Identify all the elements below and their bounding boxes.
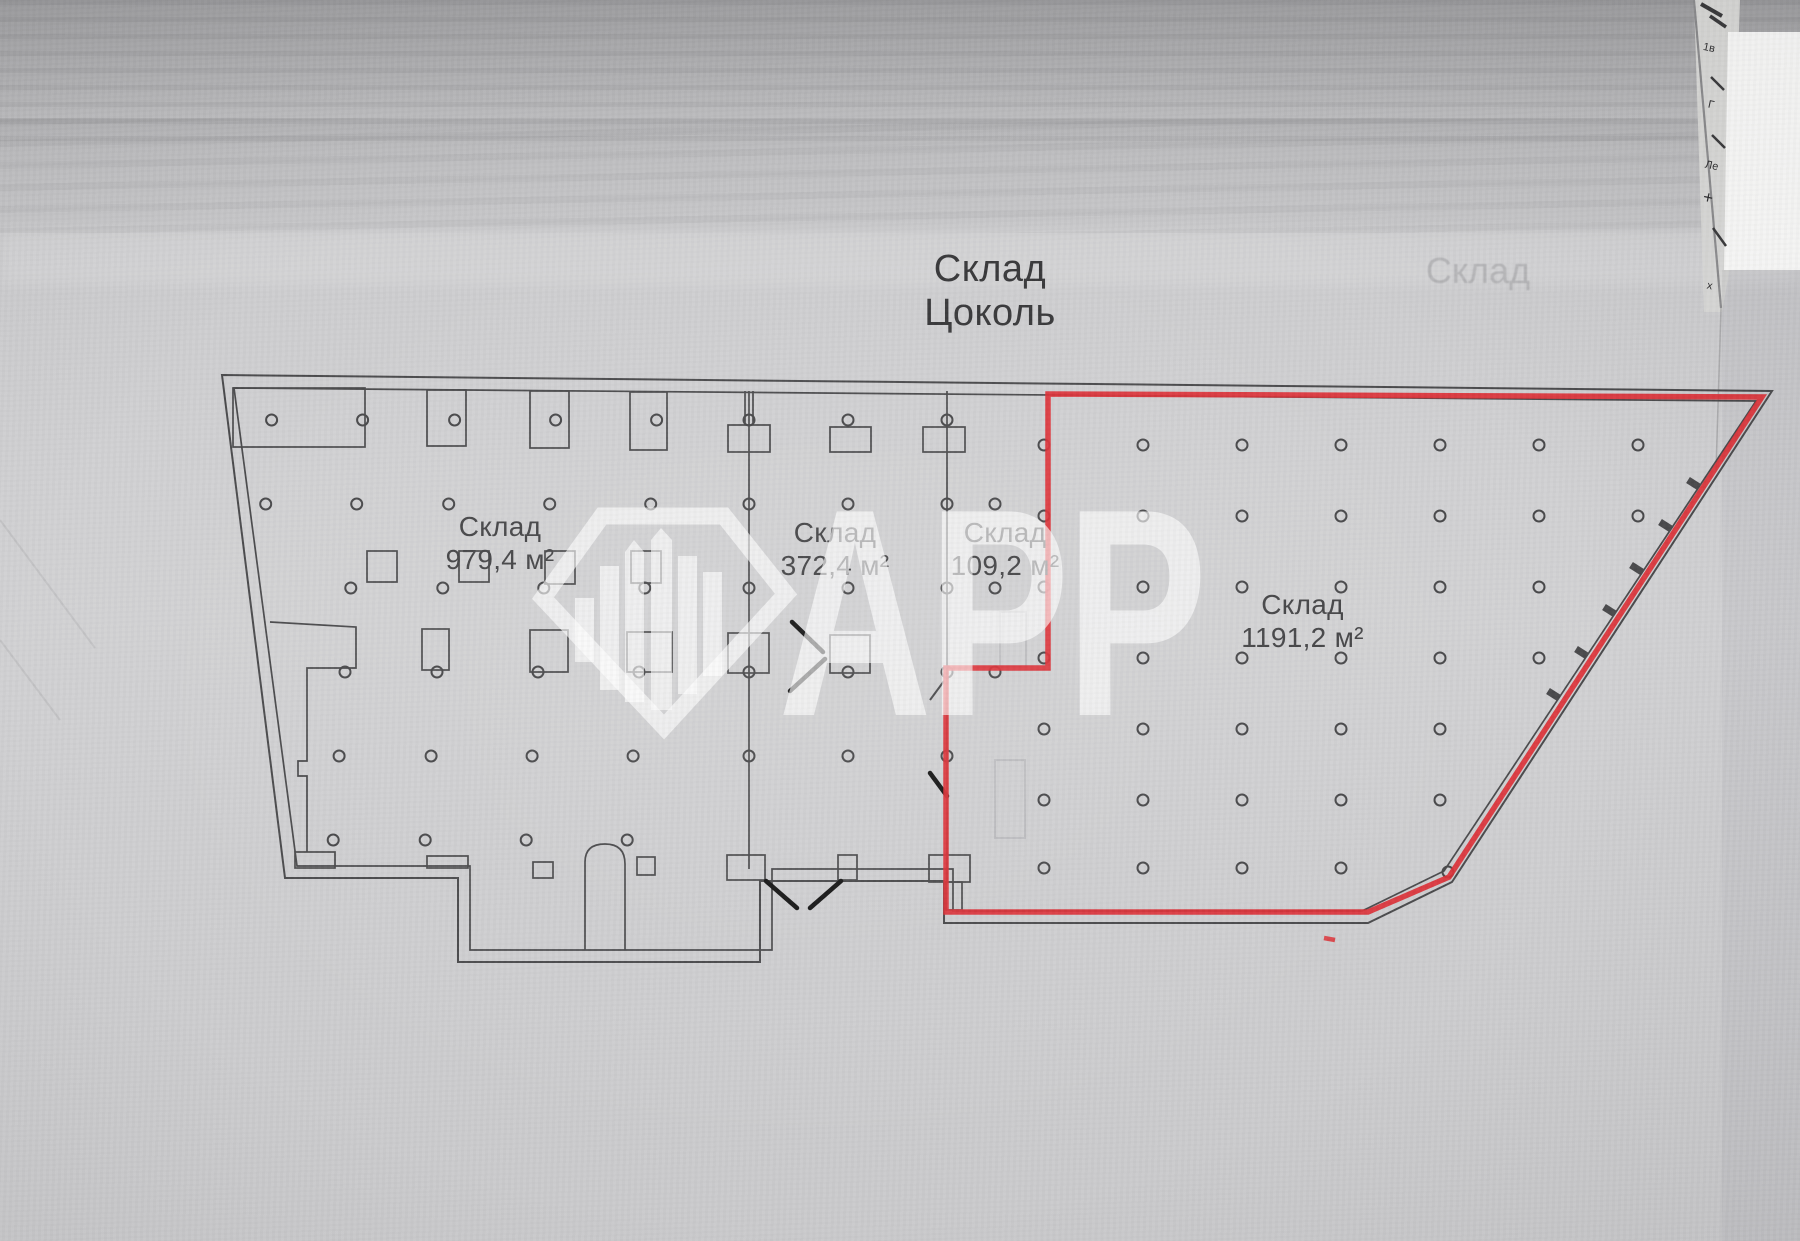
column-circle	[1435, 440, 1446, 451]
column-circle	[1336, 724, 1347, 735]
column-circles	[260, 415, 1643, 878]
column-circle	[1336, 653, 1347, 664]
column-circle	[1435, 724, 1446, 735]
column-circle	[1633, 511, 1644, 522]
bleed-through-marks	[995, 612, 1026, 838]
column-circle	[449, 415, 460, 426]
column-circle	[544, 499, 555, 510]
column-circle	[1435, 511, 1446, 522]
column-circle	[1534, 440, 1545, 451]
column-circle	[1435, 582, 1446, 593]
column-circle	[1336, 795, 1347, 806]
room-name: Склад	[772, 516, 898, 549]
left-partition	[270, 622, 356, 852]
column-circle	[651, 415, 662, 426]
column-circle	[521, 835, 532, 846]
room-label-1191: Склад 1191,2 м²	[1235, 588, 1370, 654]
column-circle	[527, 751, 538, 762]
ghost-title-bleed: Склад	[1408, 250, 1548, 292]
column-circle	[437, 583, 448, 594]
diagonal-wall-ticks	[1548, 480, 1699, 698]
column-circle	[1138, 582, 1149, 593]
column-circle	[622, 835, 633, 846]
column-circle	[843, 499, 854, 510]
adjacent-sheet-edge	[1694, 0, 1800, 1241]
column-circle	[843, 667, 854, 678]
room-area: 109,2 м²	[942, 549, 1068, 582]
room-area: 372,4 м²	[772, 549, 898, 582]
column-circle	[990, 499, 1001, 510]
column-circle	[1237, 511, 1248, 522]
floorplan-drawing	[0, 0, 1800, 1241]
column-circle	[1237, 795, 1248, 806]
column-circle	[1534, 582, 1545, 593]
column-circle	[328, 835, 339, 846]
column-circle	[1138, 724, 1149, 735]
column-circle	[843, 751, 854, 762]
room-label-979: Склад 979,4 м²	[437, 510, 563, 576]
column-circle	[420, 835, 431, 846]
plan-title: Склад Цоколь	[860, 247, 1120, 335]
column-circle	[1039, 863, 1050, 874]
column-circle	[266, 415, 277, 426]
column-circle	[334, 751, 345, 762]
room-area: 1191,2 м²	[1235, 621, 1370, 654]
room-label-109: Склад 109,2 м²	[942, 516, 1068, 582]
column-circle	[1633, 440, 1644, 451]
column-circle	[426, 751, 437, 762]
column-circle	[1237, 724, 1248, 735]
column-bases-row-b	[422, 629, 870, 673]
column-circle	[260, 499, 271, 510]
room-name: Склад	[942, 516, 1068, 549]
column-circle	[1534, 653, 1545, 664]
column-circle	[1138, 863, 1149, 874]
column-circle	[1336, 863, 1347, 874]
column-circle	[550, 415, 561, 426]
column-circle	[1237, 440, 1248, 451]
plan-title-line2: Цоколь	[860, 291, 1120, 335]
column-circle	[1435, 795, 1446, 806]
column-circle	[1138, 440, 1149, 451]
column-circle	[443, 499, 454, 510]
room-label-372: Склад 372,4 м²	[772, 516, 898, 582]
highlight-boundary	[946, 394, 1762, 940]
room-name: Склад	[1235, 588, 1370, 621]
interior-walls	[745, 391, 947, 881]
column-circle	[1138, 653, 1149, 664]
column-circle	[990, 583, 1001, 594]
column-circle	[1039, 724, 1050, 735]
column-circle	[1138, 795, 1149, 806]
column-circle	[357, 415, 368, 426]
room-name: Склад	[437, 510, 563, 543]
column-circle	[628, 751, 639, 762]
stair-area	[533, 844, 655, 950]
column-circle	[1138, 511, 1149, 522]
red-dash-mark	[1324, 938, 1335, 940]
plan-title-line1: Склад	[860, 247, 1120, 291]
column-circle	[351, 499, 362, 510]
column-circle	[1039, 795, 1050, 806]
column-circle	[432, 667, 443, 678]
column-circle	[1237, 863, 1248, 874]
column-circle	[843, 415, 854, 426]
column-circle	[345, 583, 356, 594]
column-circle	[1336, 440, 1347, 451]
room-area: 979,4 м²	[437, 543, 563, 576]
floorplan-photo: Склад Цоколь Склад Склад 979,4 м² Склад …	[0, 0, 1800, 1241]
column-circle	[1435, 653, 1446, 664]
column-circle	[1336, 511, 1347, 522]
column-circle	[1237, 653, 1248, 664]
paper-creases	[0, 520, 95, 720]
column-circle	[1534, 511, 1545, 522]
column-circle	[843, 583, 854, 594]
